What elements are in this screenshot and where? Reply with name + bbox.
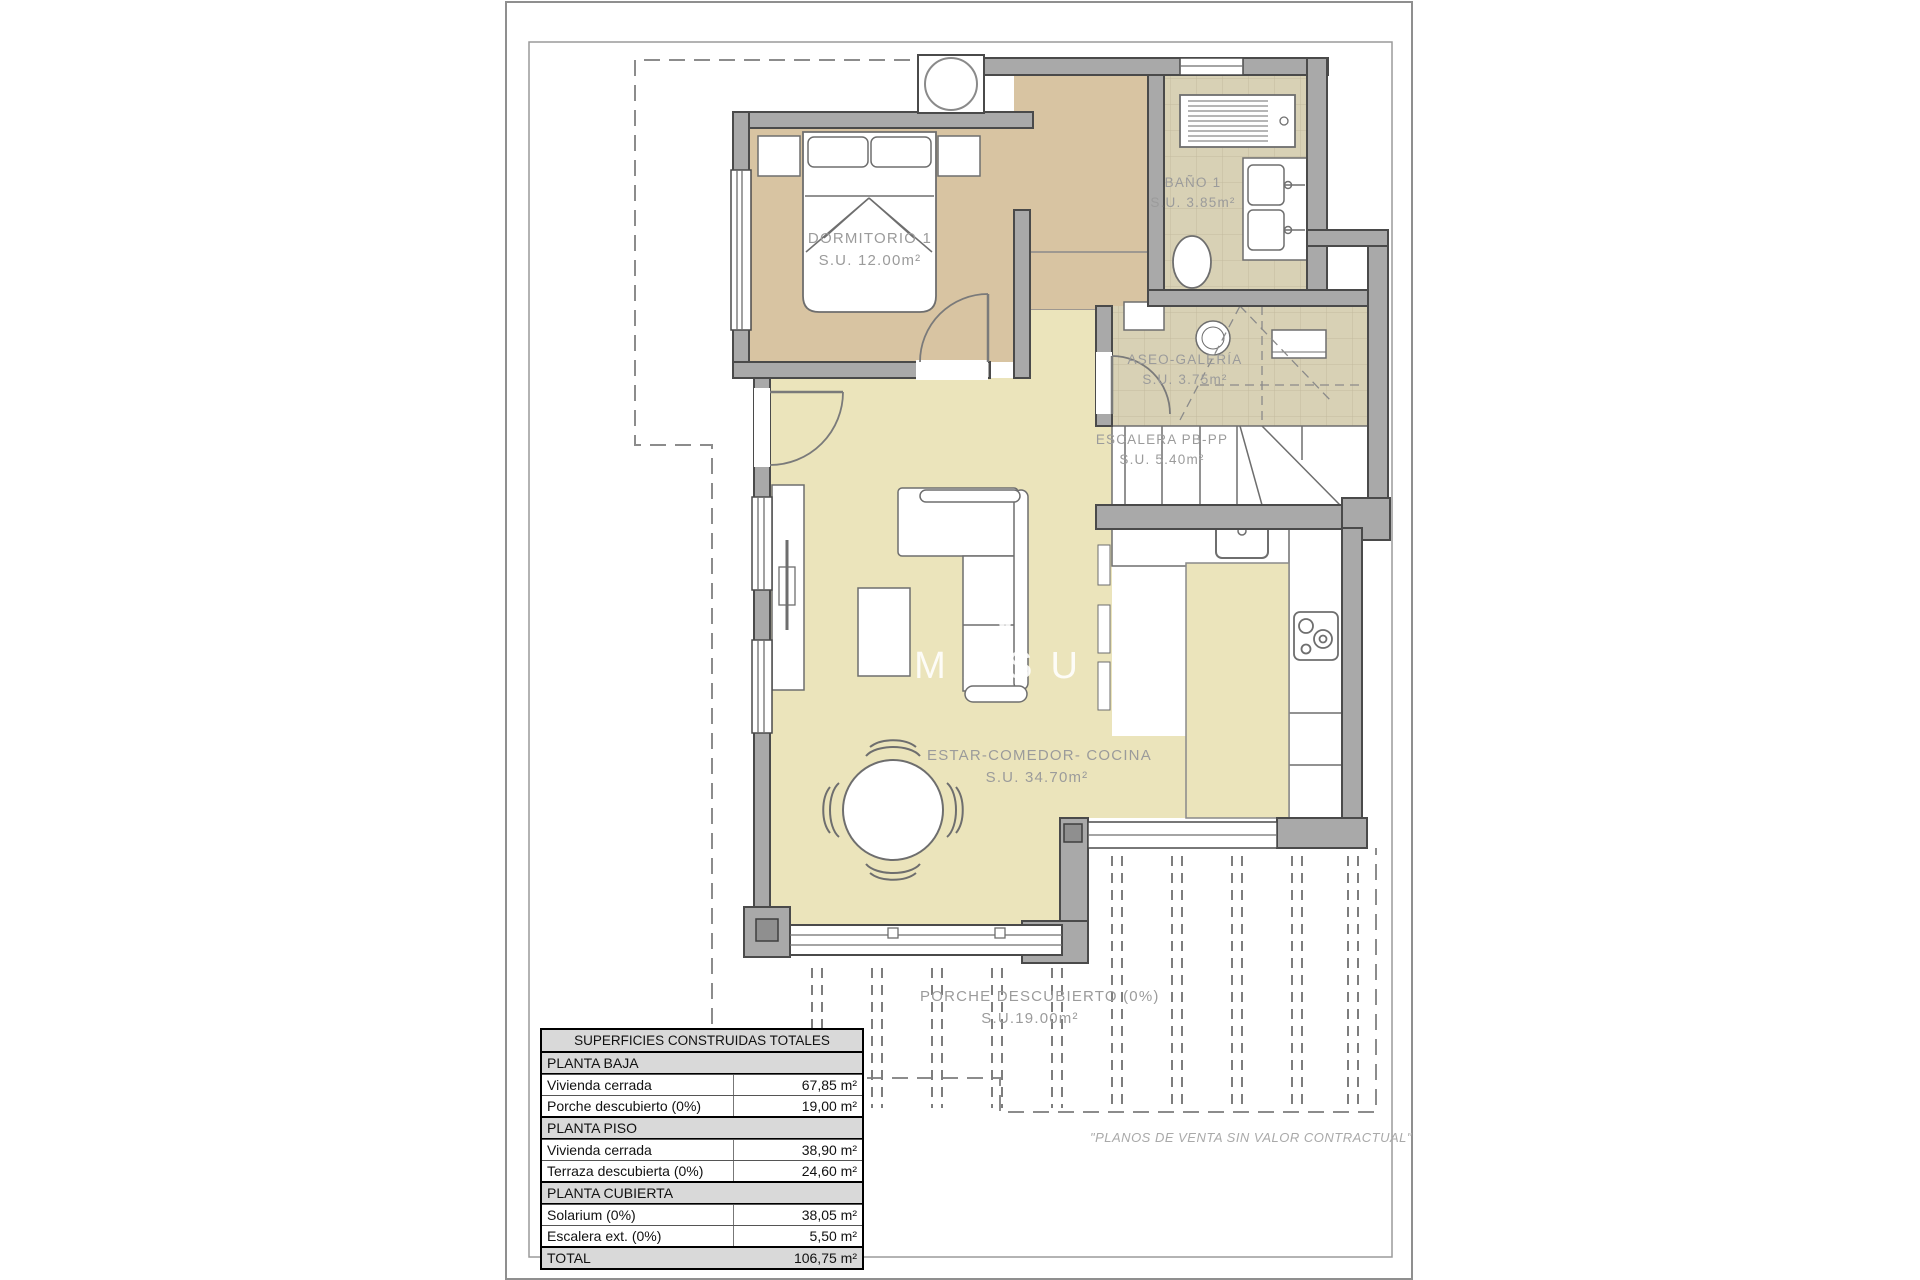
- aseo-top-wall: [1148, 290, 1388, 306]
- table-row: Terraza descubierta (0%) 24,60 m²: [542, 1160, 862, 1181]
- table-section-row: PLANTA BAJA: [542, 1051, 862, 1074]
- room-area: S.U. 12.00m²: [770, 250, 970, 272]
- bedroom-window: [731, 170, 751, 330]
- room-area: S.U. 3.75m²: [1095, 370, 1275, 390]
- table-row-value: 24,60 m²: [734, 1163, 862, 1179]
- table-row-label: Terraza descubierta (0%): [542, 1161, 734, 1181]
- kitchen-right-counter: [1289, 528, 1342, 818]
- areas-table-title-row: SUPERFICIES CONSTRUIDAS TOTALES: [542, 1030, 862, 1051]
- table-row: Vivienda cerrada 38,90 m²: [542, 1139, 862, 1160]
- table-section-label: PLANTA CUBIERTA: [547, 1185, 673, 1201]
- top-niche: [918, 55, 984, 113]
- kitchen-sliding-door: [1088, 822, 1277, 848]
- floor-plan-sheet: DORMITORIO 1 S.U. 12.00m² BAÑO 1 S.U. 3.…: [0, 0, 1920, 1280]
- table-row-label: Escalera ext. (0%): [542, 1226, 734, 1246]
- table-row-label: Porche descubierto (0%): [542, 1096, 734, 1116]
- areas-table: SUPERFICIES CONSTRUIDAS TOTALES PLANTA B…: [540, 1028, 864, 1270]
- brand-figure-icon: [993, 592, 1017, 638]
- table-row-value: 67,85 m²: [734, 1077, 862, 1093]
- washbasin: [1248, 210, 1284, 250]
- top-wall: [983, 58, 1328, 75]
- aseo-right-wall: [1368, 230, 1388, 530]
- room-label-escalera: ESCALERA PB-PP S.U. 5.40m²: [1082, 430, 1242, 469]
- column-inner-square: [756, 919, 778, 941]
- table-row: Porche descubierto (0%) 19,00 m²: [542, 1095, 862, 1116]
- table-row-label: Vivienda cerrada: [542, 1140, 734, 1160]
- room-name: DORMITORIO 1: [770, 228, 970, 250]
- washing-machine: [1272, 330, 1326, 358]
- kitchen-south-wall: [1277, 818, 1367, 848]
- table-row-label: Solarium (0%): [542, 1205, 734, 1225]
- room-area: S.U. 5.40m²: [1082, 450, 1242, 470]
- room-name: BAÑO 1: [1123, 173, 1263, 193]
- table-row: Escalera ext. (0%) 5,50 m²: [542, 1225, 862, 1246]
- table-total-row: TOTAL 106,75 m²: [542, 1246, 862, 1268]
- room-area: S.U.19.00m²: [920, 1008, 1140, 1030]
- room-name: ESCALERA PB-PP: [1082, 430, 1242, 450]
- column-circle: [925, 58, 977, 110]
- table-total-value: 106,75 m²: [733, 1250, 862, 1266]
- bedroom-top-wall: [733, 112, 1033, 128]
- room-label-aseo: ASEO-GALERÍA S.U. 3.75m²: [1095, 350, 1275, 389]
- room-label-bano: BAÑO 1 S.U. 3.85m²: [1123, 173, 1263, 212]
- room-label-estar: ESTAR-COMEDOR- COCINA S.U. 34.70m²: [927, 745, 1147, 789]
- table-section-row: PLANTA CUBIERTA: [542, 1181, 862, 1204]
- table-section-label: PLANTA PISO: [547, 1120, 637, 1136]
- room-label-dormitorio: DORMITORIO 1 S.U. 12.00m²: [770, 228, 970, 272]
- living-window: [752, 640, 772, 733]
- table-row-value: 19,00 m²: [734, 1098, 862, 1114]
- room-area: S.U. 3.85m²: [1123, 193, 1263, 213]
- table-total-label: TOTAL: [542, 1250, 733, 1266]
- bedroom-right-wall: [1014, 210, 1030, 378]
- zone-divider-slat: [1098, 545, 1110, 585]
- bath-aseo-jog-wall: [1307, 230, 1388, 246]
- living-window: [752, 497, 772, 590]
- pillow: [871, 137, 931, 167]
- room-area: S.U. 34.70m²: [927, 767, 1147, 789]
- table-row: Vivienda cerrada 67,85 m²: [542, 1074, 862, 1095]
- table-row: Solarium (0%) 38,05 m²: [542, 1204, 862, 1225]
- brand-watermark: MASU: [900, 592, 1110, 688]
- brand-watermark-letters: MASU: [900, 645, 1110, 688]
- table-section-label: PLANTA BAJA: [547, 1055, 639, 1071]
- pillow: [808, 137, 868, 167]
- table-row-value: 38,05 m²: [734, 1207, 862, 1223]
- table-row-value: 38,90 m²: [734, 1142, 862, 1158]
- table-row-value: 5,50 m²: [734, 1228, 862, 1244]
- nightstand: [758, 136, 800, 176]
- room-name: ESTAR-COMEDOR- COCINA: [927, 745, 1147, 767]
- nightstand: [938, 136, 980, 176]
- room-name: PORCHE DESCUBIERTO (0%): [920, 986, 1140, 1008]
- kitchen-peninsula: [1186, 563, 1289, 818]
- areas-table-title: SUPERFICIES CONSTRUIDAS TOTALES: [574, 1033, 830, 1048]
- room-name: ASEO-GALERÍA: [1095, 350, 1275, 370]
- bath-right-wall: [1307, 58, 1327, 306]
- room-label-porche: PORCHE DESCUBIERTO (0%) S.U.19.00m²: [920, 986, 1140, 1030]
- table-section-row: PLANTA PISO: [542, 1116, 862, 1139]
- toilet: [1173, 236, 1211, 288]
- table-row-label: Vivienda cerrada: [542, 1075, 734, 1095]
- bath-window: [1180, 58, 1243, 75]
- bay-window-band: [790, 925, 1062, 955]
- kitchen-right-wall: [1342, 528, 1362, 818]
- disclaimer-text: "PLANOS DE VENTA SIN VALOR CONTRACTUAL": [1090, 1130, 1390, 1145]
- column-inner-square: [1064, 824, 1082, 842]
